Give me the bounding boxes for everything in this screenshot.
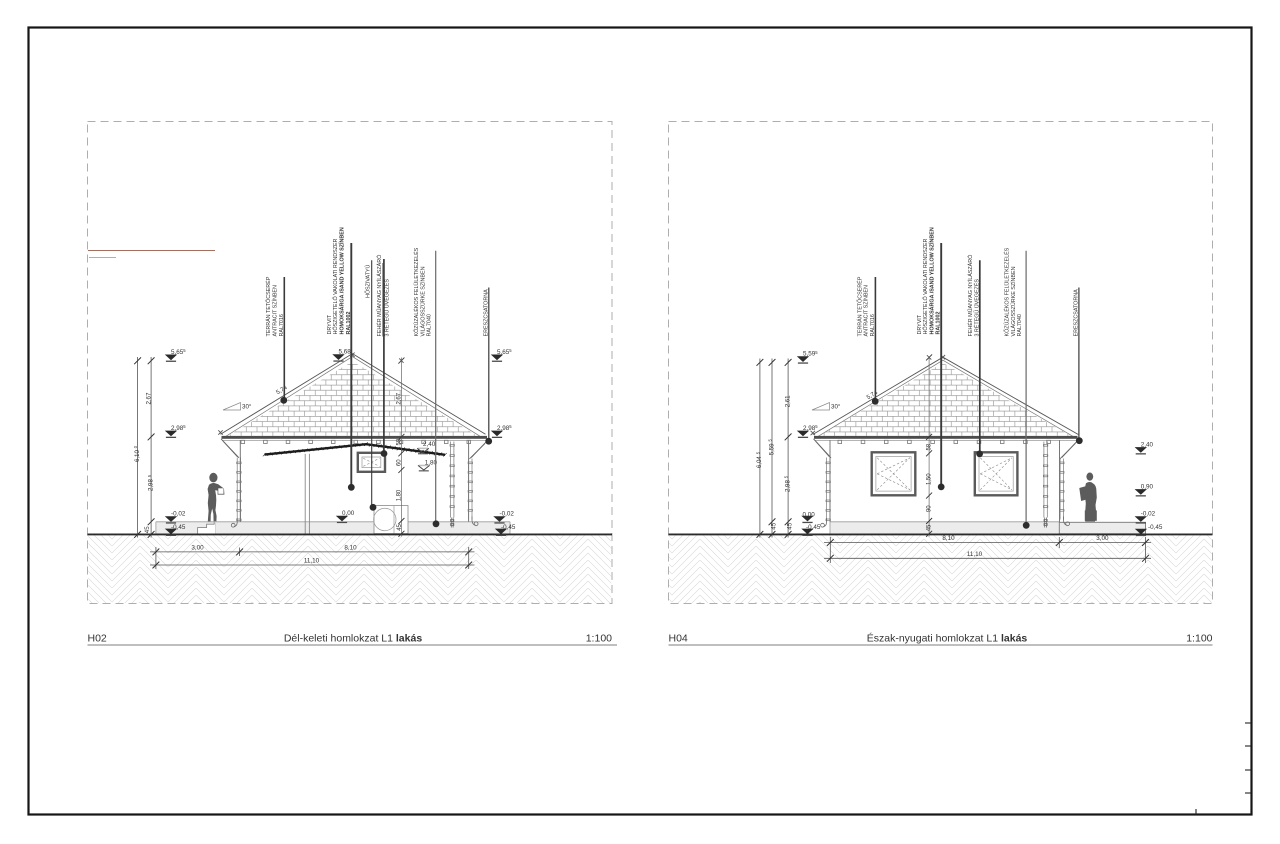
- svg-text:KŐZÚZALÉKOS FELÜLETKEZELÉS: KŐZÚZALÉKOS FELÜLETKEZELÉS: [413, 247, 420, 336]
- svg-text:Észak-nyugati homlokzat L1 lak: Észak-nyugati homlokzat L1 lakás: [867, 632, 1028, 645]
- svg-text:30°: 30°: [831, 404, 841, 411]
- svg-text:ANTRACIT SZÍNBEN: ANTRACIT SZÍNBEN: [272, 285, 279, 336]
- svg-text:30°: 30°: [242, 404, 252, 411]
- svg-text:45: 45: [144, 526, 151, 533]
- svg-text:58: 58: [397, 438, 403, 445]
- svg-text:Dél-keleti homlokzat L1 lakás: Dél-keleti homlokzat L1 lakás: [284, 633, 422, 645]
- svg-text:-0,02: -0,02: [1141, 511, 1156, 518]
- svg-text:H02: H02: [88, 633, 107, 645]
- svg-text:TERRÁN TETŐCSERÉP: TERRÁN TETŐCSERÉP: [856, 276, 863, 336]
- svg-text:45: 45: [926, 524, 932, 531]
- svg-text:0,00: 0,00: [803, 511, 816, 518]
- svg-text:0,90: 0,90: [1141, 483, 1154, 490]
- svg-text:HŐSZIGETELŐ VAKOLATI RENDSZER: HŐSZIGETELŐ VAKOLATI RENDSZER: [922, 238, 929, 334]
- svg-text:1:100: 1:100: [1186, 633, 1212, 645]
- svg-text:-0,45: -0,45: [806, 524, 821, 531]
- svg-text:1,50: 1,50: [926, 473, 932, 485]
- svg-text:5,68: 5,68: [339, 349, 352, 356]
- svg-text:2,40: 2,40: [423, 441, 436, 448]
- svg-text:-0,45: -0,45: [1148, 524, 1163, 531]
- svg-text:DRYVIT: DRYVIT: [917, 314, 923, 334]
- svg-text:5,59: 5,59: [768, 443, 775, 455]
- svg-text:6,04: 6,04: [756, 456, 763, 468]
- svg-text:3,00: 3,00: [1096, 535, 1109, 542]
- svg-text:ANTRACIT SZÍNBEN: ANTRACIT SZÍNBEN: [863, 285, 870, 336]
- svg-text:2,98: 2,98: [785, 480, 792, 492]
- svg-text:FEHÉR MŰANYAG NYÍLÁSZÁRÓ: FEHÉR MŰANYAG NYÍLÁSZÁRÓ: [967, 255, 974, 337]
- svg-text:2,98: 2,98: [148, 479, 155, 491]
- svg-text:45: 45: [787, 522, 794, 529]
- svg-text:1,80: 1,80: [397, 489, 403, 501]
- svg-text:2,67: 2,67: [145, 392, 152, 404]
- svg-text:RAL7040: RAL7040: [1017, 314, 1023, 336]
- svg-text:1:100: 1:100: [586, 633, 612, 645]
- svg-text:-0,02: -0,02: [171, 511, 186, 518]
- svg-text:FEHÉR MŰANYAG NYÍLÁSZÁRÓ: FEHÉR MŰANYAG NYÍLÁSZÁRÓ: [376, 255, 383, 337]
- svg-text:8,10: 8,10: [344, 545, 357, 552]
- svg-text:6,10: 6,10: [134, 450, 141, 462]
- svg-text:KŐZÚZALÉKOS FELÜLETKEZELÉS: KŐZÚZALÉKOS FELÜLETKEZELÉS: [1004, 247, 1011, 336]
- svg-text:11,10: 11,10: [304, 558, 320, 565]
- svg-text:HŐSZIVATYÚ: HŐSZIVATYÚ: [365, 264, 372, 298]
- svg-text:VILÁGOSSZÜRKE SZÍNBEN: VILÁGOSSZÜRKE SZÍNBEN: [419, 266, 426, 336]
- svg-text:8,10: 8,10: [942, 535, 955, 542]
- svg-text:0,00: 0,00: [342, 510, 355, 517]
- svg-text:2,40: 2,40: [1141, 441, 1154, 448]
- svg-text:RAL7040: RAL7040: [427, 314, 433, 336]
- svg-text:-0,45: -0,45: [171, 524, 186, 531]
- svg-text:58: 58: [926, 443, 932, 450]
- svg-text:H04: H04: [669, 633, 688, 645]
- svg-text:11,10: 11,10: [967, 551, 983, 558]
- svg-text:TERRÁN TETŐCSERÉP: TERRÁN TETŐCSERÉP: [265, 276, 272, 336]
- svg-text:60: 60: [397, 459, 403, 466]
- svg-text:DRYVIT: DRYVIT: [327, 314, 333, 334]
- svg-text:-0,45: -0,45: [501, 524, 516, 531]
- svg-text:3,00: 3,00: [191, 545, 204, 552]
- svg-text:2,61: 2,61: [785, 395, 792, 407]
- svg-text:-0,02: -0,02: [500, 511, 515, 518]
- svg-text:45: 45: [770, 522, 777, 529]
- svg-text:45: 45: [397, 524, 403, 531]
- svg-text:HOMOKSÁRGA /SAND YELLOW SZÍNBE: HOMOKSÁRGA /SAND YELLOW SZÍNBEN: [927, 227, 935, 334]
- svg-text:HŐSZIGETELŐ VAKOLATI RENDSZER: HŐSZIGETELŐ VAKOLATI RENDSZER: [332, 238, 339, 334]
- svg-text:HOMOKSÁRGA /SAND YELLOW SZÍNBE: HOMOKSÁRGA /SAND YELLOW SZÍNBEN: [338, 227, 346, 334]
- svg-text:2,67: 2,67: [397, 392, 403, 404]
- svg-text:VILÁGOSSZÜRKE SZÍNBEN: VILÁGOSSZÜRKE SZÍNBEN: [1010, 266, 1017, 336]
- svg-text:90: 90: [926, 505, 932, 512]
